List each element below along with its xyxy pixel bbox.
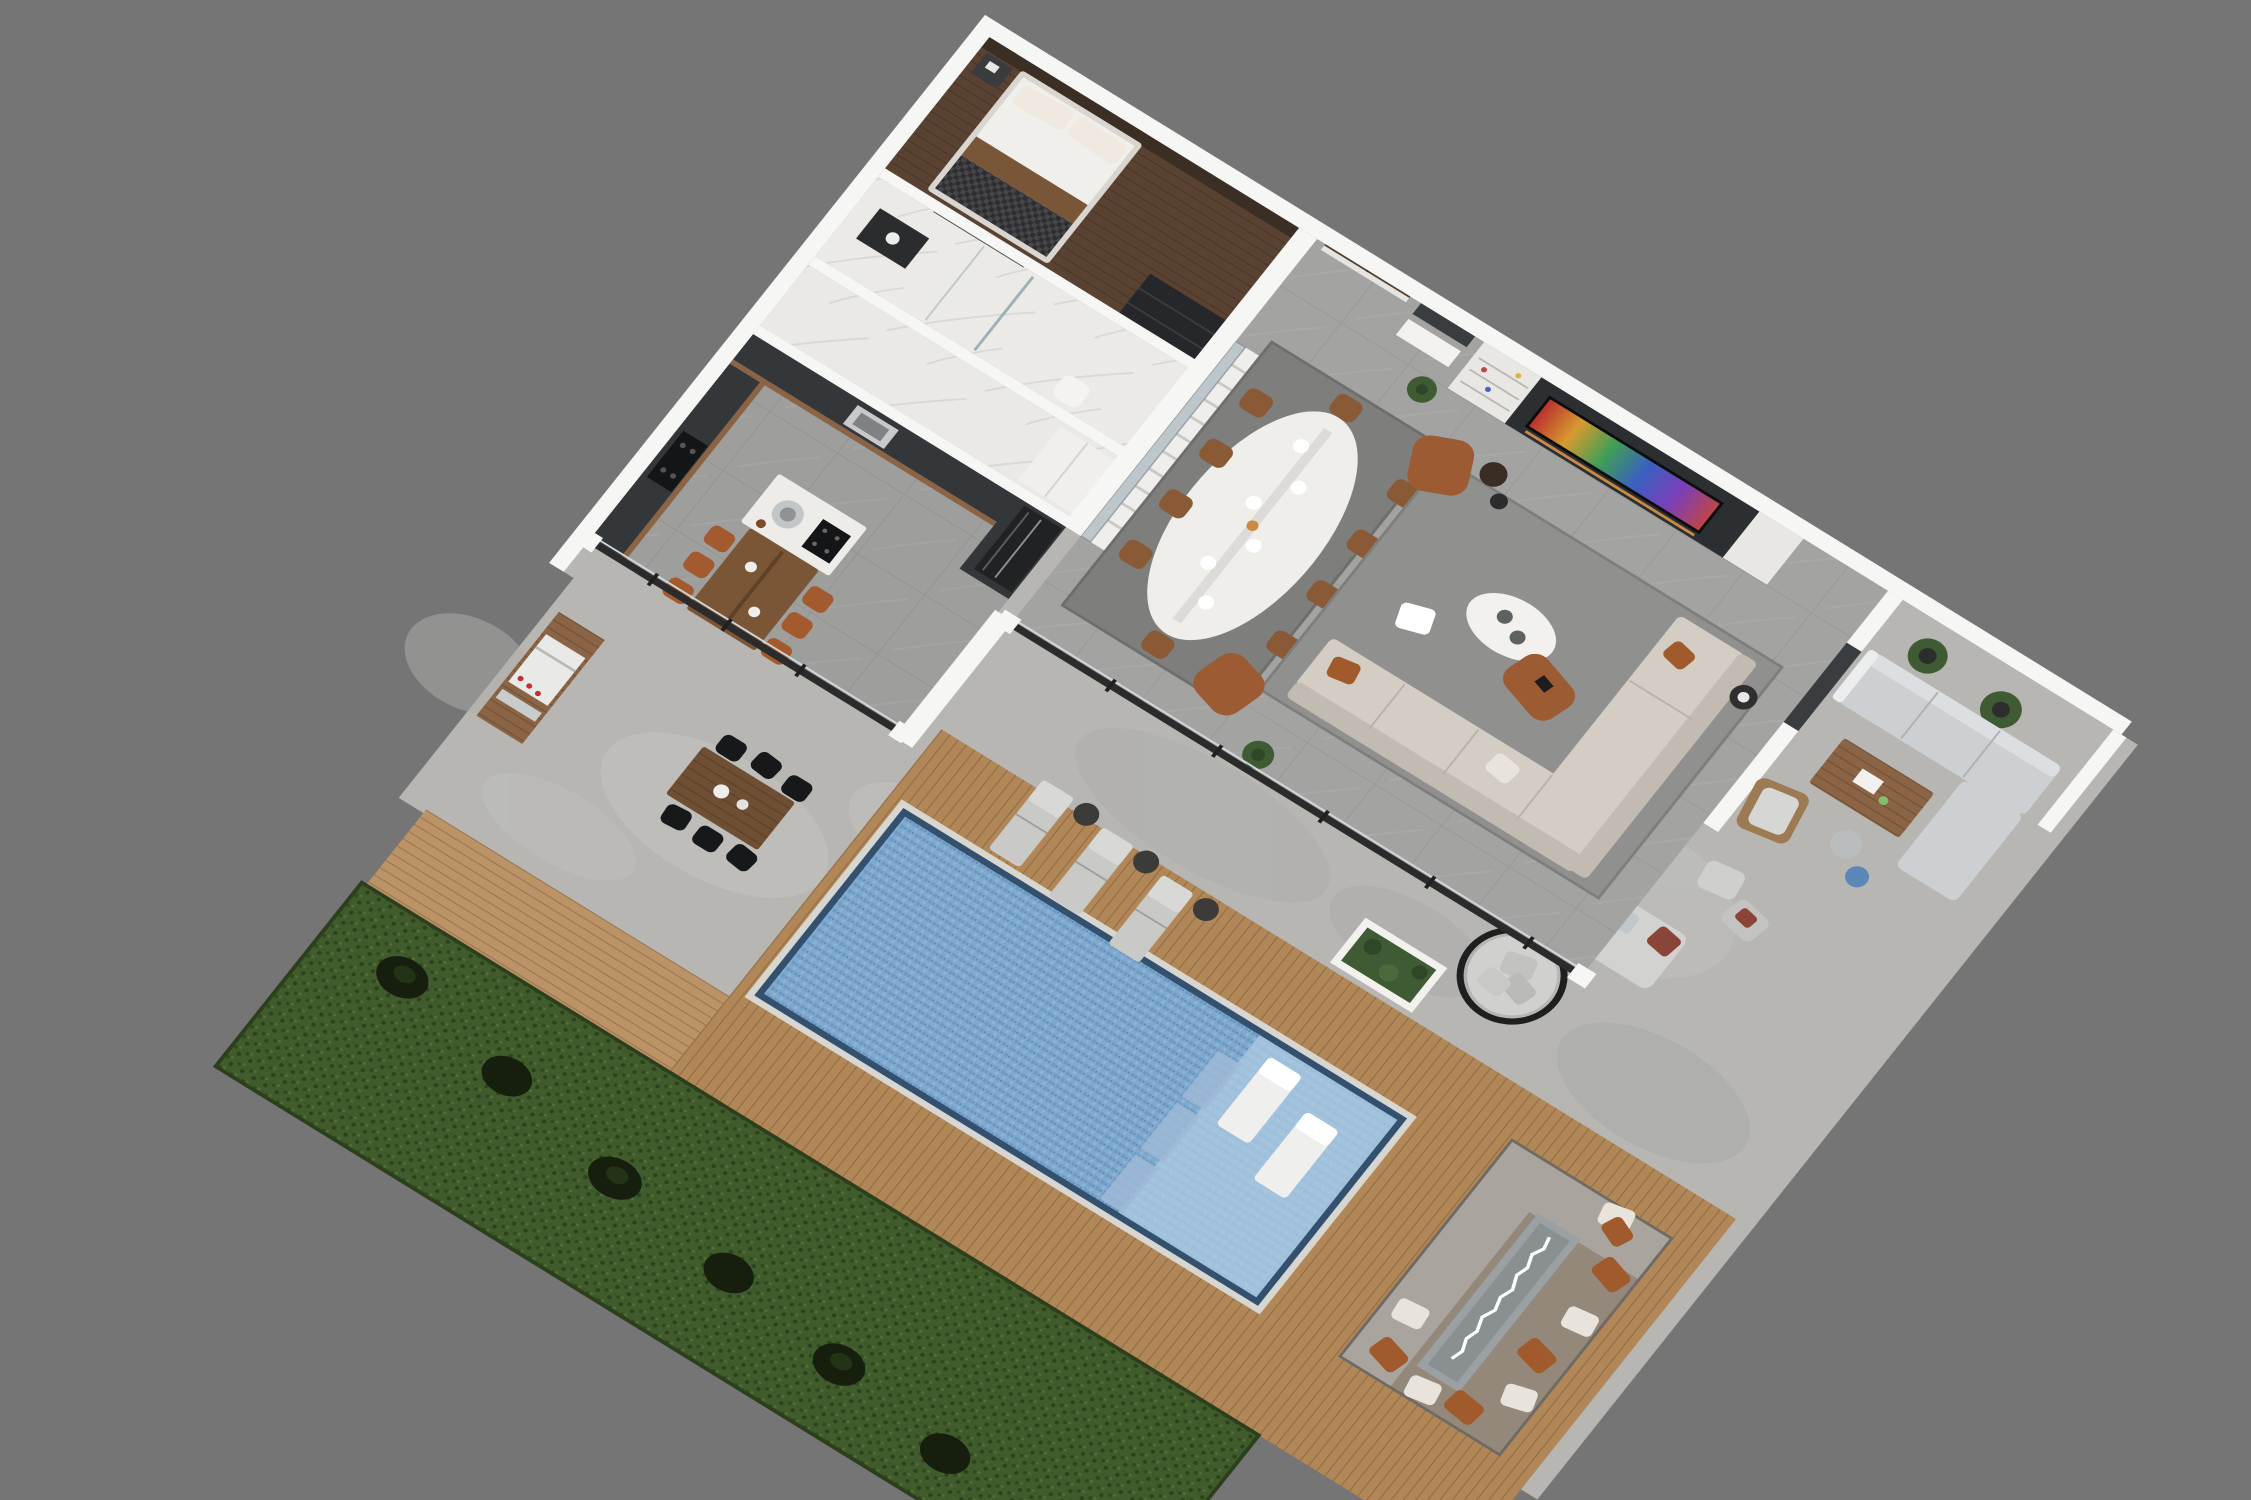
floor-plan-svg [0, 0, 2251, 1500]
render-canvas [0, 0, 2251, 1500]
